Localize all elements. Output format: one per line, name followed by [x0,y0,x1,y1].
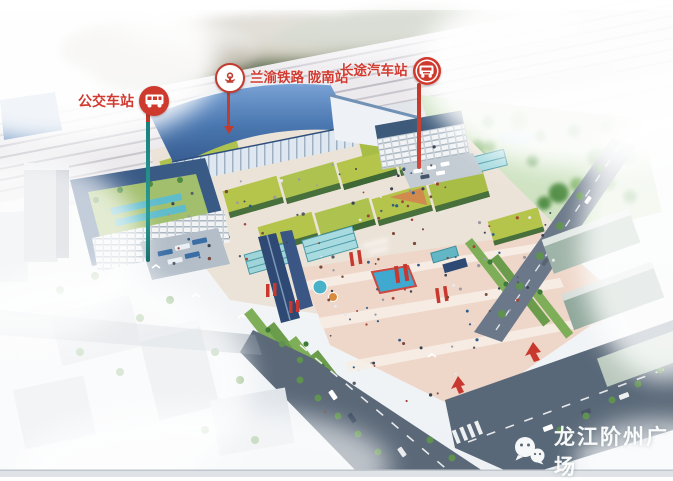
annotation-railway-station: 兰渝铁路 陇南站 [215,65,348,91]
coach-bus-icon [413,57,441,85]
railway-pin-arrowhead [224,126,234,134]
aerial-rendering: 公交车站 兰渝铁路 陇南站 长途汽车站 [0,0,673,477]
watermark-text: 龙江阶州广场 [554,421,673,481]
bus-icon [139,86,169,116]
wechat-icon [512,436,546,466]
annotation-bus-station: 公交车站 [78,86,169,116]
bus-station-label: 公交车站 [78,94,134,108]
coach-station-label: 长途汽车站 [340,64,408,78]
railway-station-pin-line [227,89,230,127]
bus-station-pin-line [146,112,150,262]
watermark: 龙江阶州广场 [512,421,673,481]
dome-tent [313,280,327,294]
coach-station-pin-line [417,83,421,169]
china-railway-icon [215,63,245,93]
annotation-coach-station: 长途汽车站 [340,57,441,85]
railway-station-label: 兰渝铁路 陇南站 [250,71,348,85]
